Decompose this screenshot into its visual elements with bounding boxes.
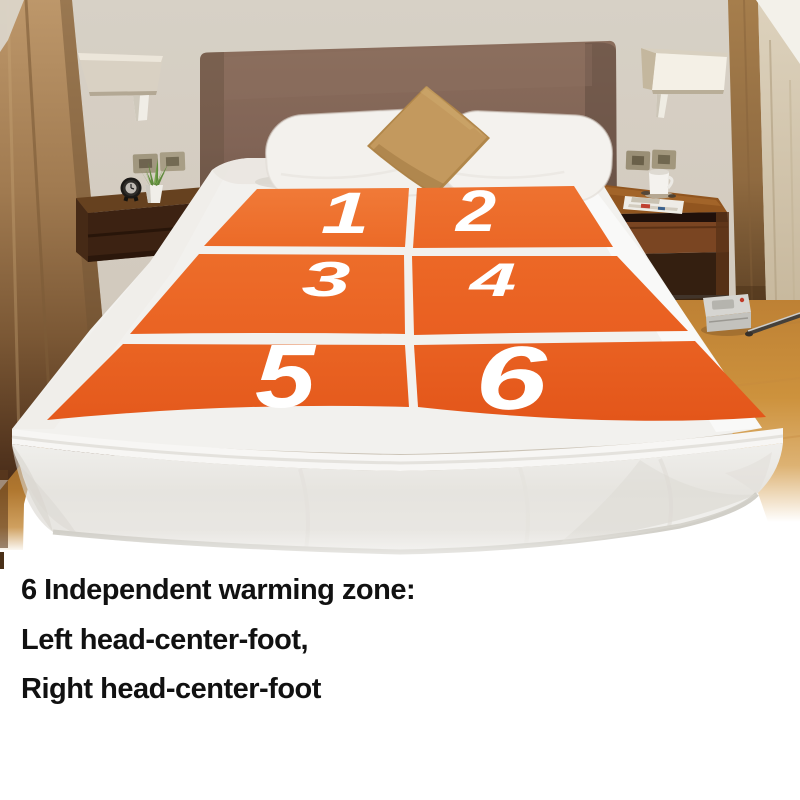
svg-text:Left head-center-foot,: Left head-center-foot,	[21, 624, 308, 656]
svg-text:4: 4	[467, 254, 516, 306]
svg-text:6 Independent warming zone:: 6 Independent warming zone:	[21, 574, 415, 606]
svg-text:2: 2	[454, 179, 497, 243]
svg-text:5: 5	[255, 326, 317, 426]
svg-text:6: 6	[475, 327, 548, 428]
svg-text:1: 1	[321, 180, 369, 245]
svg-text:Right head-center-foot: Right head-center-foot	[21, 673, 322, 705]
svg-text:3: 3	[301, 252, 350, 307]
